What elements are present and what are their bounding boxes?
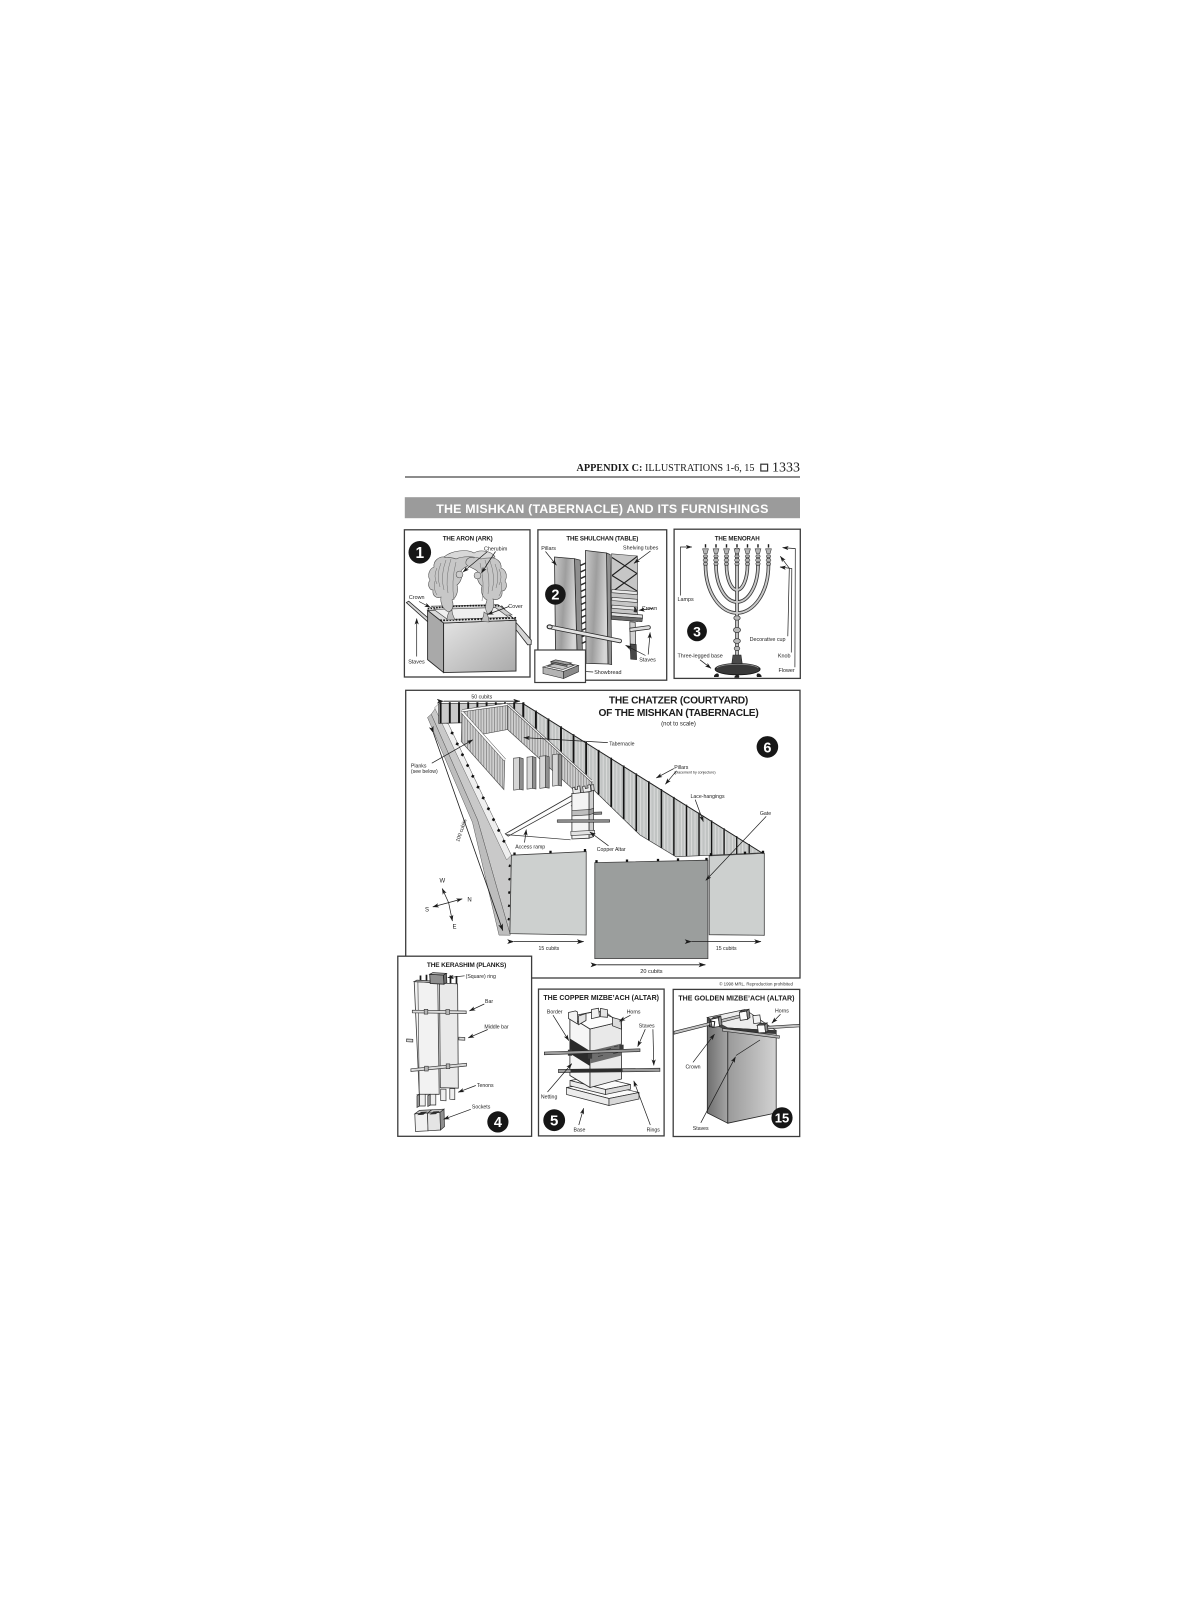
svg-text:THE GOLDEN MIZBE’ACH (ALTAR): THE GOLDEN MIZBE’ACH (ALTAR) [678,996,794,1003]
svg-text:OF THE MISHKAN (TABERNACLE): OF THE MISHKAN (TABERNACLE) [598,708,758,719]
svg-text:Border: Border [547,1009,563,1015]
svg-text:Three-legged base: Three-legged base [678,654,723,660]
svg-text:Flower: Flower [779,668,795,674]
svg-text:Staves: Staves [639,1023,655,1029]
svg-text:Knob: Knob [778,654,791,660]
svg-text:THE CHATZER (COURTYARD): THE CHATZER (COURTYARD) [609,696,748,707]
svg-text:2: 2 [551,588,559,604]
svg-text:APPENDIX C: ILLUSTRATIONS 1-6,: APPENDIX C: ILLUSTRATIONS 1-6, 15 [577,463,755,474]
svg-text:50 cubits: 50 cubits [471,695,492,701]
svg-text:Crown: Crown [686,1065,701,1071]
svg-text:THE SHULCHAN (TABLE): THE SHULCHAN (TABLE) [566,536,638,543]
svg-text:Rings: Rings [647,1128,661,1134]
svg-text:N: N [467,898,471,904]
svg-text:W: W [439,878,445,884]
svg-text:1: 1 [415,545,424,562]
svg-text:(not to scale): (not to scale) [661,722,696,728]
svg-text:Staves: Staves [639,658,656,664]
svg-text:Middle bar: Middle bar [484,1024,508,1030]
svg-text:Cherubim: Cherubim [484,547,508,553]
svg-text:20 cubits: 20 cubits [640,969,663,975]
svg-text:100 cubits: 100 cubits [455,818,469,843]
svg-text:(placement by conjecture): (placement by conjecture) [674,770,715,774]
svg-text:Crown: Crown [642,606,658,612]
svg-text:Crown: Crown [409,595,425,601]
svg-text:(see below): (see below) [411,769,438,775]
svg-text:Bar: Bar [485,999,493,1005]
svg-text:Shelving tubes: Shelving tubes [623,545,659,551]
svg-text:3: 3 [693,623,701,639]
svg-text:15: 15 [775,1111,789,1126]
svg-text:Showbread: Showbread [594,670,621,676]
svg-text:6: 6 [763,740,771,756]
svg-text:Netting: Netting [541,1094,558,1100]
svg-text:E: E [452,924,456,930]
svg-text:THE KERASHIM (PLANKS): THE KERASHIM (PLANKS) [427,962,506,969]
svg-text:15 cubits: 15 cubits [539,946,560,952]
svg-text:Tenons: Tenons [477,1083,494,1089]
svg-text:Lace-hangings: Lace-hangings [691,794,725,800]
svg-text:Horns: Horns [775,1008,789,1014]
svg-text:15 cubits: 15 cubits [716,946,737,952]
svg-text:(Square) ring: (Square) ring [466,974,496,980]
svg-text:© 1998 MRL. Reproduction prohi: © 1998 MRL. Reproduction prohibited [719,981,793,986]
svg-text:Pillars: Pillars [541,546,556,552]
svg-text:Lamps: Lamps [678,597,694,603]
svg-text:1333: 1333 [772,460,800,475]
svg-text:Cover: Cover [508,604,523,610]
svg-text:THE MENORAH: THE MENORAH [715,536,761,543]
svg-text:Sockets: Sockets [472,1104,491,1110]
svg-text:Gate: Gate [760,811,771,817]
svg-text:THE MISHKAN (TABERNACLE) AND I: THE MISHKAN (TABERNACLE) AND ITS FURNISH… [436,502,768,516]
svg-text:Staves: Staves [408,660,425,666]
svg-text:Decorative cup: Decorative cup [750,637,786,643]
svg-text:4: 4 [494,1115,502,1131]
svg-text:THE ARON (ARK): THE ARON (ARK) [443,536,493,543]
svg-text:Horns: Horns [627,1009,641,1015]
svg-text:Tabernacle: Tabernacle [609,741,634,747]
svg-text:Access ramp: Access ramp [515,845,545,851]
svg-text:5: 5 [550,1113,558,1130]
svg-text:Base: Base [574,1128,586,1134]
svg-text:S: S [425,907,429,913]
svg-text:Copper Altar: Copper Altar [597,847,626,853]
svg-text:Staves: Staves [693,1126,709,1132]
svg-text:THE COPPER MIZBE’ACH (ALTAR): THE COPPER MIZBE’ACH (ALTAR) [543,995,659,1002]
